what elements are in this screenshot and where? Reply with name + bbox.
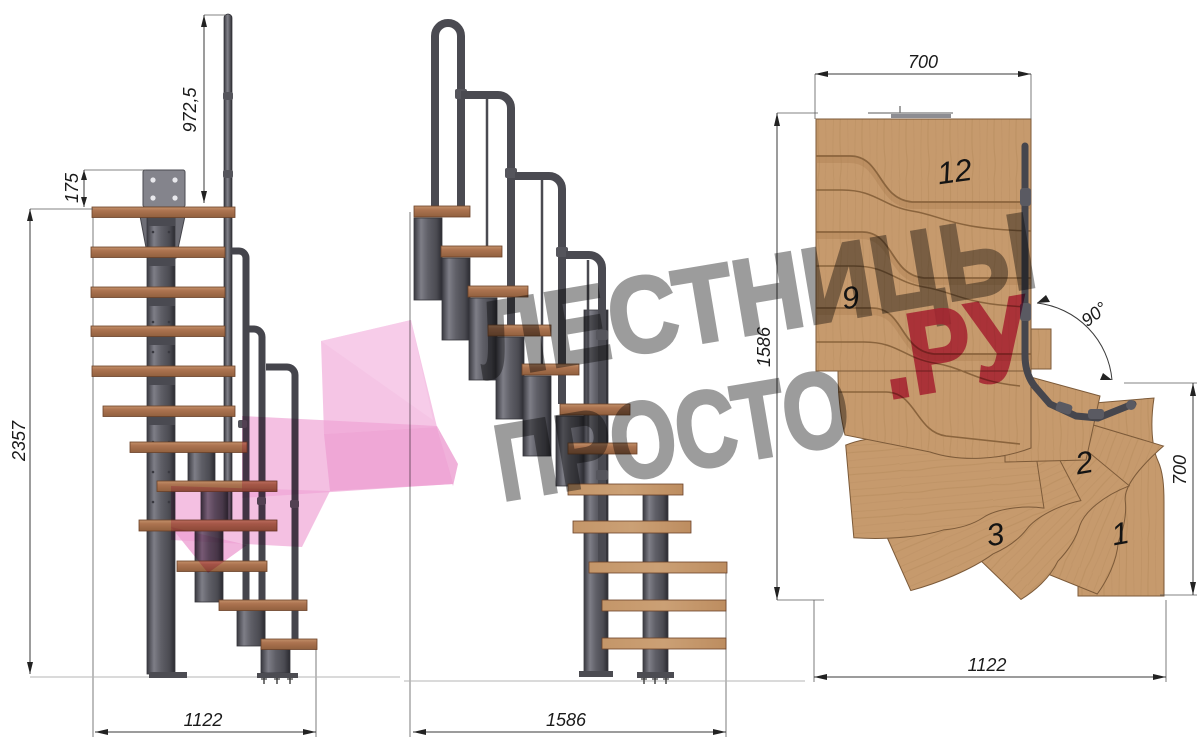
svg-text:700: 700 — [908, 52, 938, 72]
svg-text:175: 175 — [62, 172, 82, 203]
svg-text:1122: 1122 — [968, 655, 1007, 675]
svg-text:12: 12 — [935, 152, 974, 191]
svg-text:2357: 2357 — [9, 420, 29, 462]
svg-text:1586: 1586 — [546, 710, 587, 730]
svg-text:1122: 1122 — [184, 710, 223, 730]
svg-text:.РУ: .РУ — [871, 270, 1042, 423]
svg-text:972,5: 972,5 — [180, 86, 200, 132]
svg-text:700: 700 — [1170, 455, 1190, 485]
